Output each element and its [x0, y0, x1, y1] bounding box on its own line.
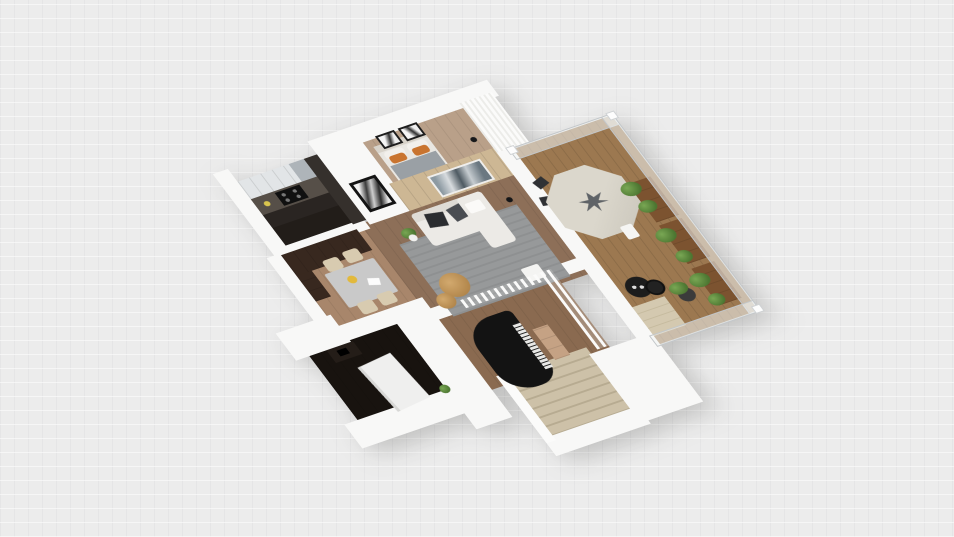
dark-room-monitor	[336, 348, 350, 357]
sofa-pillow-dark	[424, 212, 449, 228]
umbrella-base-graphic	[573, 188, 614, 216]
white-tablet	[367, 278, 381, 285]
chaise-pillow-white	[464, 199, 486, 214]
design-canvas	[0, 0, 954, 537]
fruit-bowl	[345, 274, 359, 284]
